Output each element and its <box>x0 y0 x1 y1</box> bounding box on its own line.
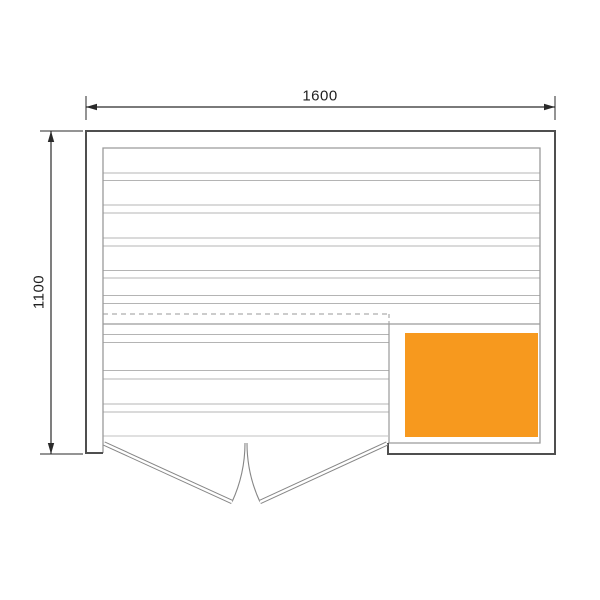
dimension-width-arrow-right <box>544 104 555 110</box>
dimension-height-label: 1100 <box>32 275 47 309</box>
dimension-height-arrow-top <box>48 131 54 142</box>
dimension-width-arrow-left <box>86 104 97 110</box>
technical-drawing: 1600 1100 <box>0 0 600 600</box>
door-leaf-left-core <box>104 444 232 503</box>
dimension-width-label: 1600 <box>302 89 337 104</box>
door-swing-arc-right <box>247 443 260 502</box>
page: { "drawing": { "type": "floor-plan-techn… <box>0 0 600 600</box>
door-swing-arc-left <box>232 443 245 502</box>
door-leaf-right-core <box>260 444 387 503</box>
floor-plan-svg <box>0 0 600 600</box>
heater-block <box>405 333 538 437</box>
dimension-height-arrow-bottom <box>48 443 54 454</box>
